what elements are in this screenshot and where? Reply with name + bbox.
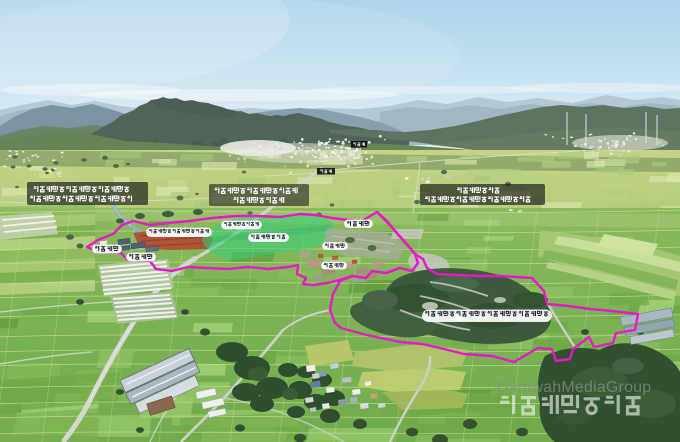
svg-text:DamwahMediaGroup: DamwahMediaGroup <box>497 379 651 396</box>
